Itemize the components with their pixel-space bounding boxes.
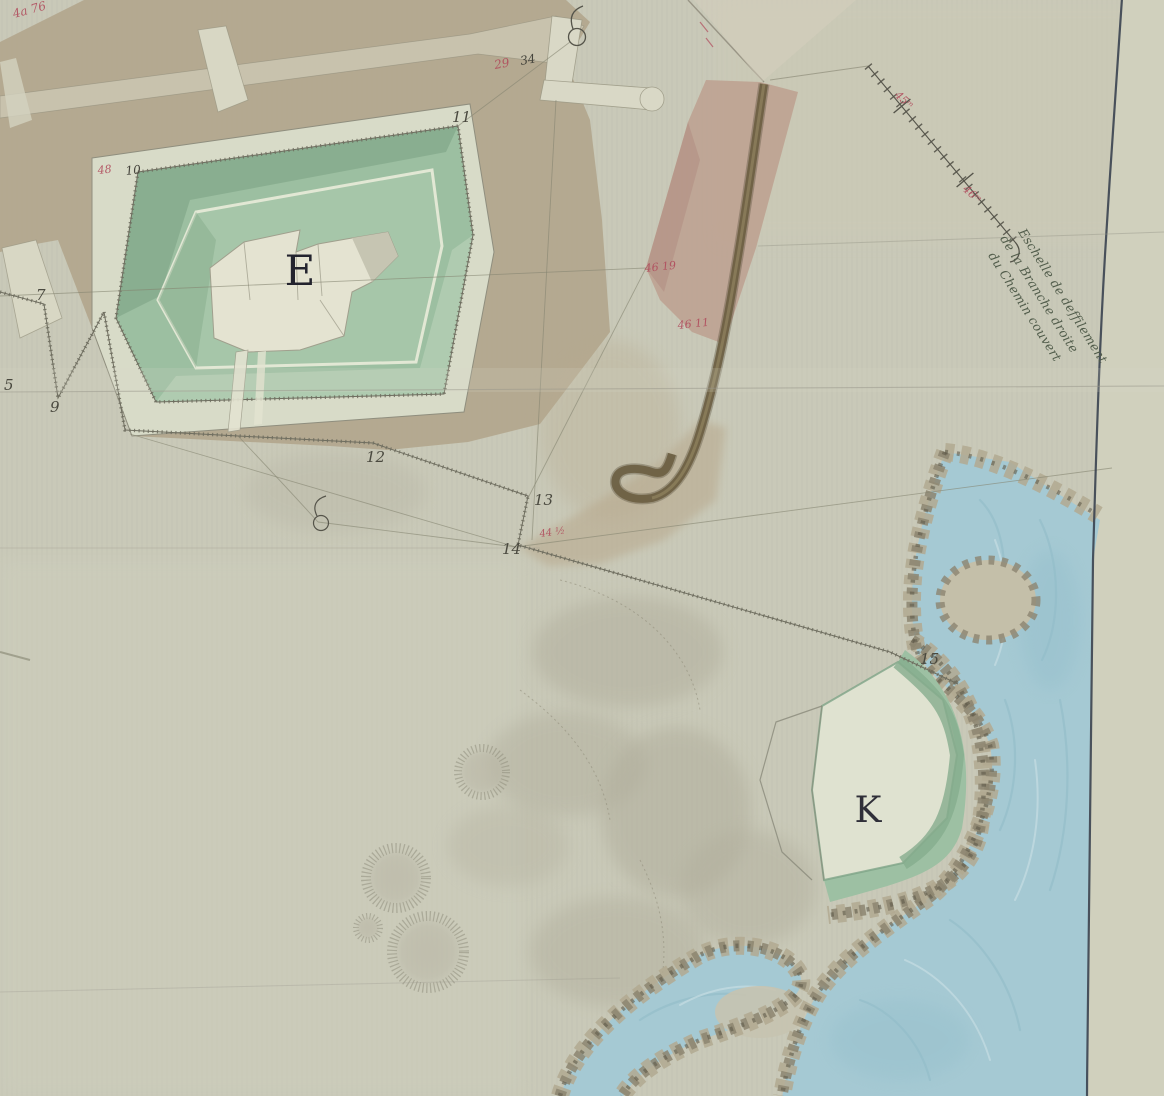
fort-label: E: [285, 246, 316, 295]
red-annotation: 48: [96, 163, 112, 177]
rocky-islet: [940, 560, 1036, 640]
map-photo: E K 5 7 9 11 12 13 14 15 4a 76 48 29 46 …: [0, 0, 1164, 1096]
survey-point-label: 7: [36, 286, 46, 304]
ink-annotation: 10: [125, 162, 142, 178]
map-drawing: E K 5 7 9 11 12 13 14 15 4a 76 48 29 46 …: [0, 0, 1164, 1096]
survey-point-label: 9: [50, 398, 60, 416]
redoubt-label: K: [855, 790, 883, 831]
red-annotation: 29: [492, 55, 511, 72]
survey-point-label: 5: [4, 376, 14, 394]
ink-annotation: 34: [519, 52, 536, 68]
survey-point-label: 15: [920, 650, 939, 668]
survey-point-label: 12: [366, 448, 385, 466]
survey-point-label: 14: [502, 540, 521, 558]
survey-point-label: 13: [534, 491, 553, 509]
survey-point-label: 11: [452, 108, 471, 126]
